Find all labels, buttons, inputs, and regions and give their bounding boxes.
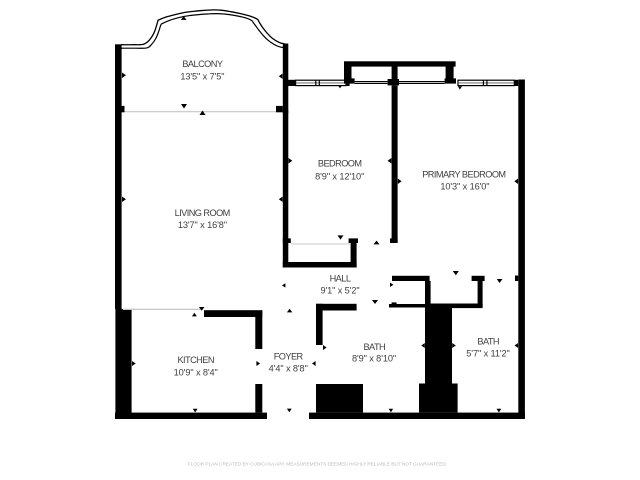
svg-text:13'7" x 16'8": 13'7" x 16'8" (178, 220, 227, 230)
svg-text:8'9" x 8'10": 8'9" x 8'10" (352, 353, 396, 363)
svg-text:FLOOR PLAN CREATED BY CUBICASA: FLOOR PLAN CREATED BY CUBICASA APP. MEAS… (188, 461, 447, 467)
svg-text:BATH: BATH (477, 337, 499, 347)
svg-text:HALL: HALL (330, 274, 351, 284)
svg-text:13'5" x 7'5": 13'5" x 7'5" (180, 71, 224, 81)
svg-text:LIVING ROOM: LIVING ROOM (175, 208, 230, 218)
svg-text:BATH: BATH (363, 342, 385, 352)
svg-text:4'4" x 8'8": 4'4" x 8'8" (269, 364, 308, 374)
svg-text:BALCONY: BALCONY (182, 59, 222, 69)
svg-text:KITCHEN: KITCHEN (177, 355, 213, 365)
svg-text:PRIMARY BEDROOM: PRIMARY BEDROOM (422, 170, 505, 180)
svg-text:BEDROOM: BEDROOM (318, 158, 362, 168)
svg-text:FOYER: FOYER (274, 352, 304, 362)
svg-text:8'9" x 12'10": 8'9" x 12'10" (315, 172, 364, 182)
svg-text:5'7" x 11'2": 5'7" x 11'2" (466, 348, 509, 358)
svg-text:9'1" x 5'2": 9'1" x 5'2" (320, 286, 359, 296)
svg-text:10'9" x 8'4": 10'9" x 8'4" (174, 367, 218, 377)
svg-text:10'3" x 16'0": 10'3" x 16'0" (440, 181, 489, 191)
